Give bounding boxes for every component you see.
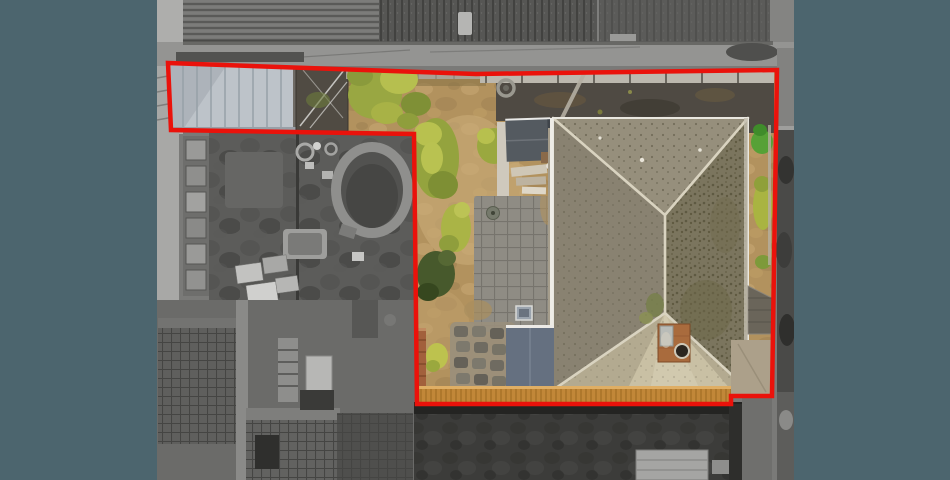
chimney (658, 324, 690, 362)
side-fence-line (768, 125, 771, 265)
storage-crates-area (157, 300, 417, 480)
aerial-photo-canvas (0, 0, 950, 480)
neighbor-roof-slatted (183, 0, 379, 43)
garage-roof (168, 63, 297, 131)
ladder (278, 338, 298, 402)
rear-alley-path (157, 41, 794, 66)
aerial-property-photo: Overhead drone photograph of a residenti… (0, 0, 950, 480)
mesh-crate-1 (158, 318, 236, 444)
mesh-crate-3 (337, 413, 413, 480)
neighbor-roof-corner (770, 0, 794, 48)
dark-bin (255, 435, 279, 469)
roof-vent (458, 12, 472, 35)
neighbor-driveway-right (776, 48, 795, 480)
rear-hedge (414, 396, 772, 480)
chimney-flue (675, 344, 689, 358)
aerial-photograph (157, 0, 797, 480)
neighbor-roof-dark (379, 0, 770, 46)
patio-pavers (464, 185, 556, 332)
greenhouse (296, 63, 348, 131)
slab-stack (636, 450, 708, 480)
